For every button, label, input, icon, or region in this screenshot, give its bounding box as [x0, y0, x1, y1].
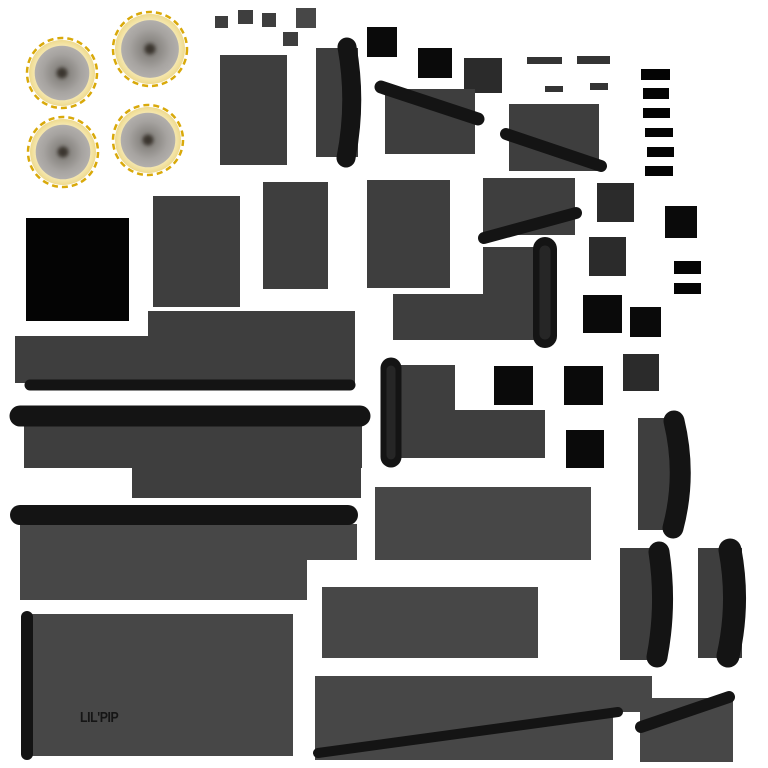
square-dark-d — [623, 354, 659, 391]
blade-b-curve — [657, 552, 663, 657]
rung-3 — [643, 108, 670, 118]
panel-bottom-b — [315, 676, 652, 712]
panel-band-c2 — [132, 468, 361, 498]
square-black-a — [367, 27, 397, 57]
rung-2 — [643, 88, 669, 99]
panel-band-d — [20, 524, 357, 560]
rung-5 — [647, 147, 674, 157]
panel-bottom-a — [322, 587, 538, 658]
lens-curve — [346, 47, 352, 158]
blade-c-curve — [728, 550, 735, 656]
blade-a-curve — [673, 421, 680, 528]
chip-a — [215, 16, 228, 28]
strip-a — [527, 57, 562, 64]
panel-row2-b — [263, 182, 328, 289]
panel-band-d2 — [20, 560, 307, 600]
square-black-e — [630, 307, 661, 337]
speaker-cone-2 — [113, 12, 187, 86]
chip-b — [238, 10, 253, 24]
speaker-center-dot — [57, 68, 67, 78]
square-black-d — [583, 295, 622, 333]
atlas-svg — [0, 0, 768, 768]
square-dark-b — [597, 183, 634, 222]
square-black-large — [26, 218, 129, 321]
panel-row2-a — [153, 196, 240, 307]
speaker-cone-1 — [27, 38, 97, 108]
square-black-g — [564, 366, 603, 405]
chip-e — [283, 32, 298, 46]
rung-6 — [645, 166, 673, 176]
speaker-cone-3 — [28, 117, 98, 187]
square-black-f — [494, 366, 533, 405]
atlas-label: LIL'PIP — [80, 710, 118, 725]
square-dark-c — [589, 237, 626, 276]
rung-4 — [645, 128, 673, 137]
speaker-center-dot — [143, 135, 153, 145]
square-black-c — [665, 206, 697, 238]
panel-step-b — [392, 410, 545, 458]
tab-black-b — [674, 283, 701, 294]
tab-black-a — [674, 261, 701, 274]
rung-1 — [641, 69, 670, 80]
square-black-h — [566, 430, 604, 468]
panel-tall-left — [220, 55, 287, 165]
texture-atlas-canvas: LIL'PIP — [0, 0, 768, 768]
panel-band-c — [24, 421, 362, 468]
panel-row2-c — [367, 180, 450, 288]
strip-b — [577, 56, 610, 64]
speaker-center-dot — [58, 147, 68, 157]
square-black-b — [418, 48, 452, 78]
chip-d — [296, 8, 316, 28]
square-dark-a — [464, 58, 502, 93]
speaker-cone-4 — [113, 105, 183, 175]
chip-c — [262, 13, 276, 27]
strip-c — [545, 86, 563, 92]
panel-wide-e — [375, 487, 591, 560]
bracket-horizontal — [393, 294, 541, 340]
strip-d — [590, 83, 608, 90]
speakers-layer — [27, 12, 187, 187]
speaker-center-dot — [145, 44, 155, 54]
speaker-panel — [28, 614, 293, 756]
panel-band-b — [15, 336, 355, 383]
